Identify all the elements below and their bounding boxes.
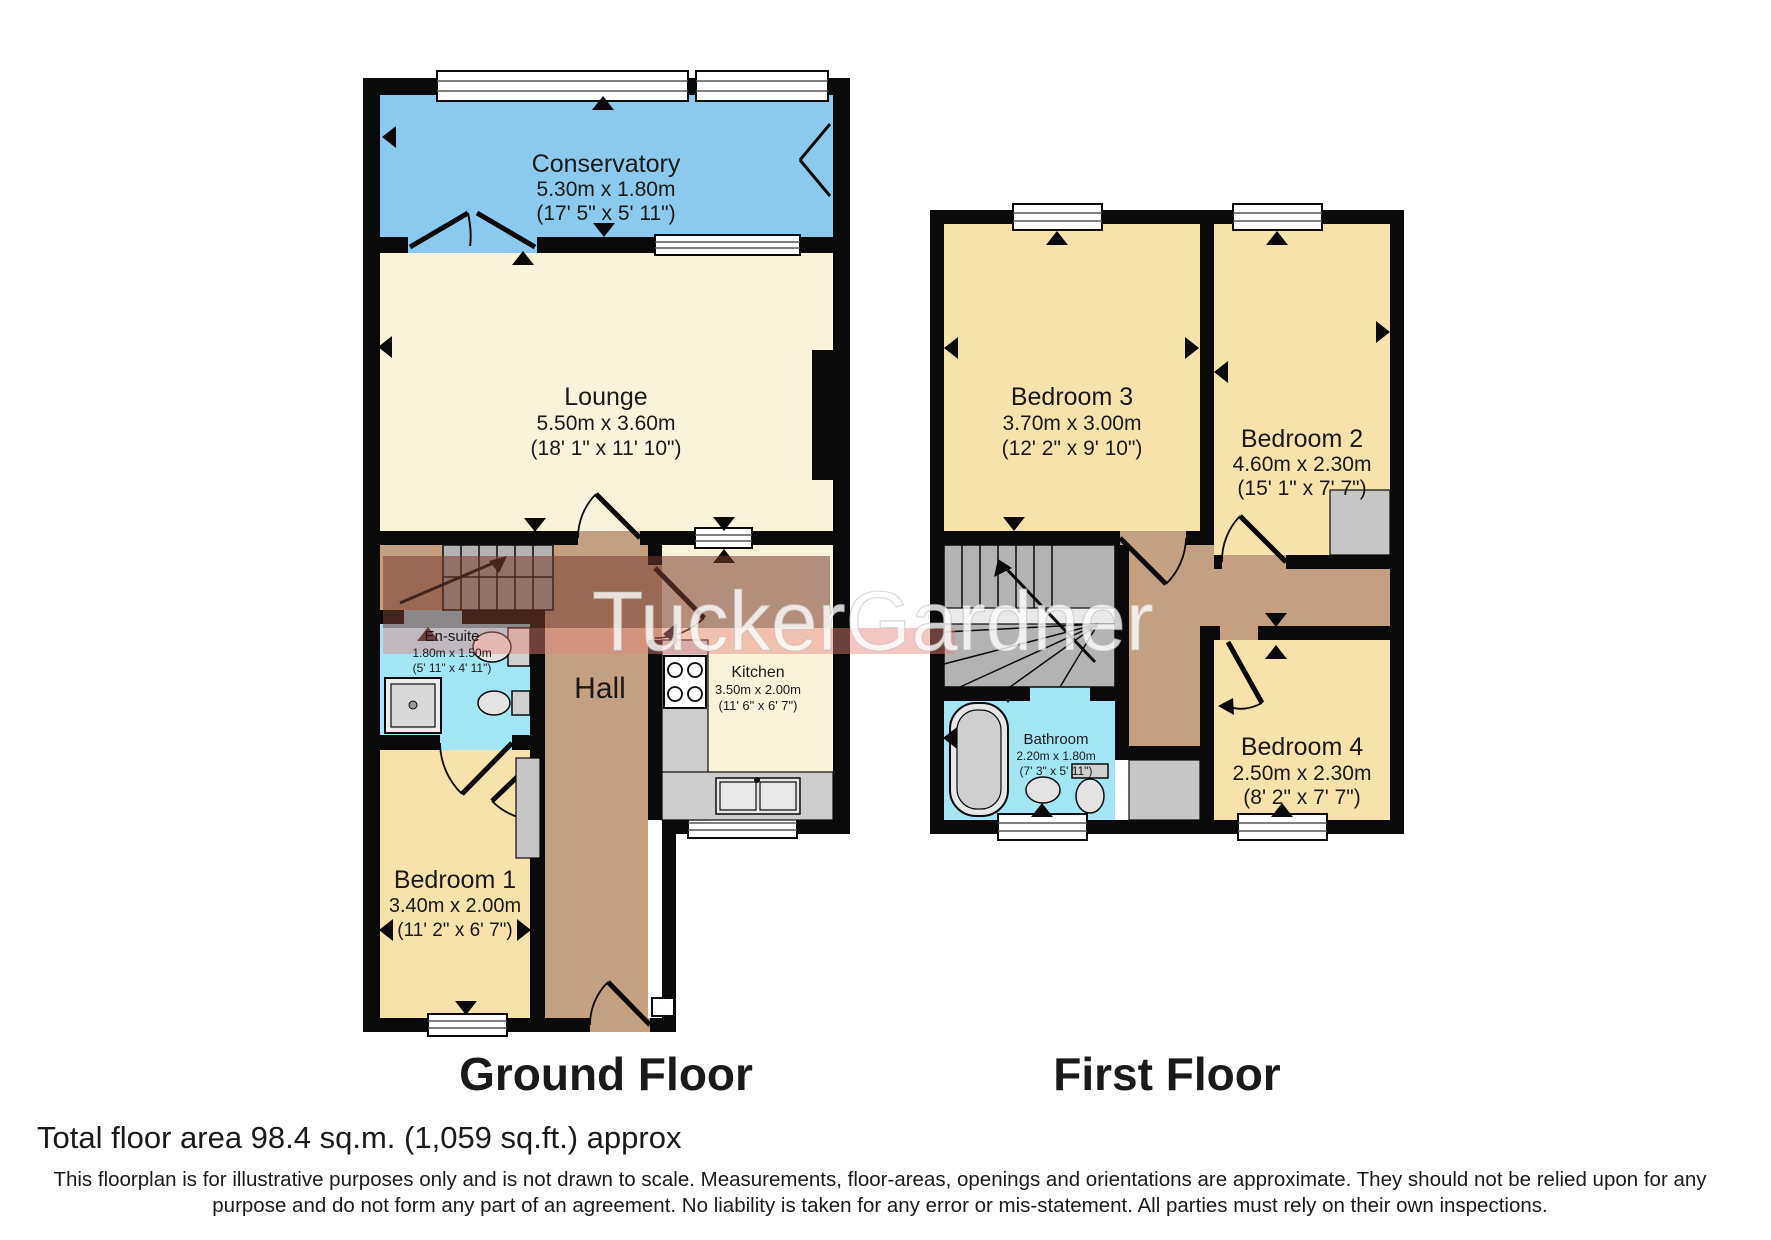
lounge-imperial: (18' 1" x 11' 10")	[531, 437, 682, 460]
conservatory-label: Conservatory	[532, 150, 681, 178]
floorplan-page: TuckerGardner Conservatory 5.30m x 1.80m…	[0, 0, 1771, 1240]
bedroom1-label: Bedroom 1	[394, 866, 516, 894]
bedroom1-metric: 3.40m x 2.00m	[389, 895, 521, 917]
bathroom-door-opening	[1030, 687, 1090, 701]
footer: Total floor area 98.4 sq.m. (1,059 sq.ft…	[37, 1120, 1707, 1217]
ensuite-label: En-suite	[424, 628, 479, 645]
kitchen-label: Kitchen	[731, 664, 784, 681]
bedroom3-imperial: (12' 2" x 9' 10")	[1002, 437, 1143, 460]
bedroom3-metric: 3.70m x 3.00m	[1003, 412, 1142, 435]
landing-pass	[1200, 545, 1214, 569]
ensuite-imperial: (5' 11" x 4' 11")	[413, 661, 492, 675]
basin	[478, 691, 530, 715]
disclaimer-line1: This floorplan is for illustrative purpo…	[53, 1168, 1707, 1191]
bedroom3-room	[944, 224, 1200, 531]
shower	[385, 678, 441, 733]
bathtub	[950, 703, 1008, 816]
conservatory-imperial: (17' 5" x 5' 11")	[536, 202, 675, 225]
bedroom4-label: Bedroom 4	[1241, 733, 1363, 761]
bedroom4-metric: 2.50m x 2.30m	[1233, 762, 1372, 785]
first-floor-title: First Floor	[1053, 1048, 1281, 1100]
ensuite-metric: 1.80m x 1.50m	[412, 646, 491, 660]
chimney-breast	[812, 350, 833, 480]
bedroom4-door-opening	[1220, 626, 1258, 640]
ensuite-door-opening	[440, 735, 512, 750]
hall-label: Hall	[574, 672, 626, 705]
basin	[1026, 777, 1060, 803]
window	[696, 71, 828, 101]
window	[655, 235, 800, 255]
bedroom1-imperial: (11' 2" x 6' 7")	[397, 920, 512, 941]
bedroom2-metric: 4.60m x 2.30m	[1233, 453, 1372, 476]
window	[998, 814, 1087, 840]
landing-pass	[1200, 569, 1214, 626]
bedroom3-label: Bedroom 3	[1011, 383, 1133, 411]
bedroom2-imperial: (15' 1" x 7' 7")	[1237, 477, 1366, 500]
kitchen-metric: 3.50m x 2.00m	[715, 682, 801, 697]
kitchen-imperial: (11' 6" x 6' 7")	[719, 698, 798, 713]
cupboard	[1129, 760, 1200, 820]
bedroom2-label: Bedroom 2	[1241, 425, 1363, 453]
titles: Ground Floor First Floor	[459, 1048, 1281, 1100]
bedroom2-door-opening	[1222, 555, 1286, 569]
front-door-opening	[590, 1018, 650, 1032]
ground-floor-title: Ground Floor	[459, 1048, 753, 1100]
wardrobe	[516, 758, 540, 858]
bathroom-label: Bathroom	[1023, 731, 1088, 748]
window	[437, 71, 688, 101]
window	[1233, 204, 1322, 230]
bathroom-imperial: (7' 3" x 5' 11")	[1020, 764, 1093, 778]
total-floor-area: Total floor area 98.4 sq.m. (1,059 sq.ft…	[37, 1120, 682, 1155]
hatch-window	[695, 528, 752, 548]
bathroom-metric: 2.20m x 1.80m	[1016, 749, 1095, 763]
bedroom3-door-opening	[1120, 531, 1186, 545]
window	[1013, 204, 1102, 230]
floorplan-svg: TuckerGardner Conservatory 5.30m x 1.80m…	[0, 0, 1771, 1240]
lounge-door-opening	[578, 531, 640, 545]
lounge-metric: 5.50m x 3.60m	[537, 412, 676, 435]
watermark-text: TuckerGardner	[592, 574, 1154, 668]
disclaimer-line2: purpose and do not form any part of an a…	[212, 1194, 1547, 1217]
bedroom4-imperial: (8' 2" x 7' 7")	[1243, 786, 1360, 809]
window	[1238, 814, 1327, 840]
window	[428, 1014, 507, 1036]
conservatory-metric: 5.30m x 1.80m	[537, 178, 676, 201]
sink	[716, 777, 800, 814]
lounge-label: Lounge	[564, 383, 647, 411]
